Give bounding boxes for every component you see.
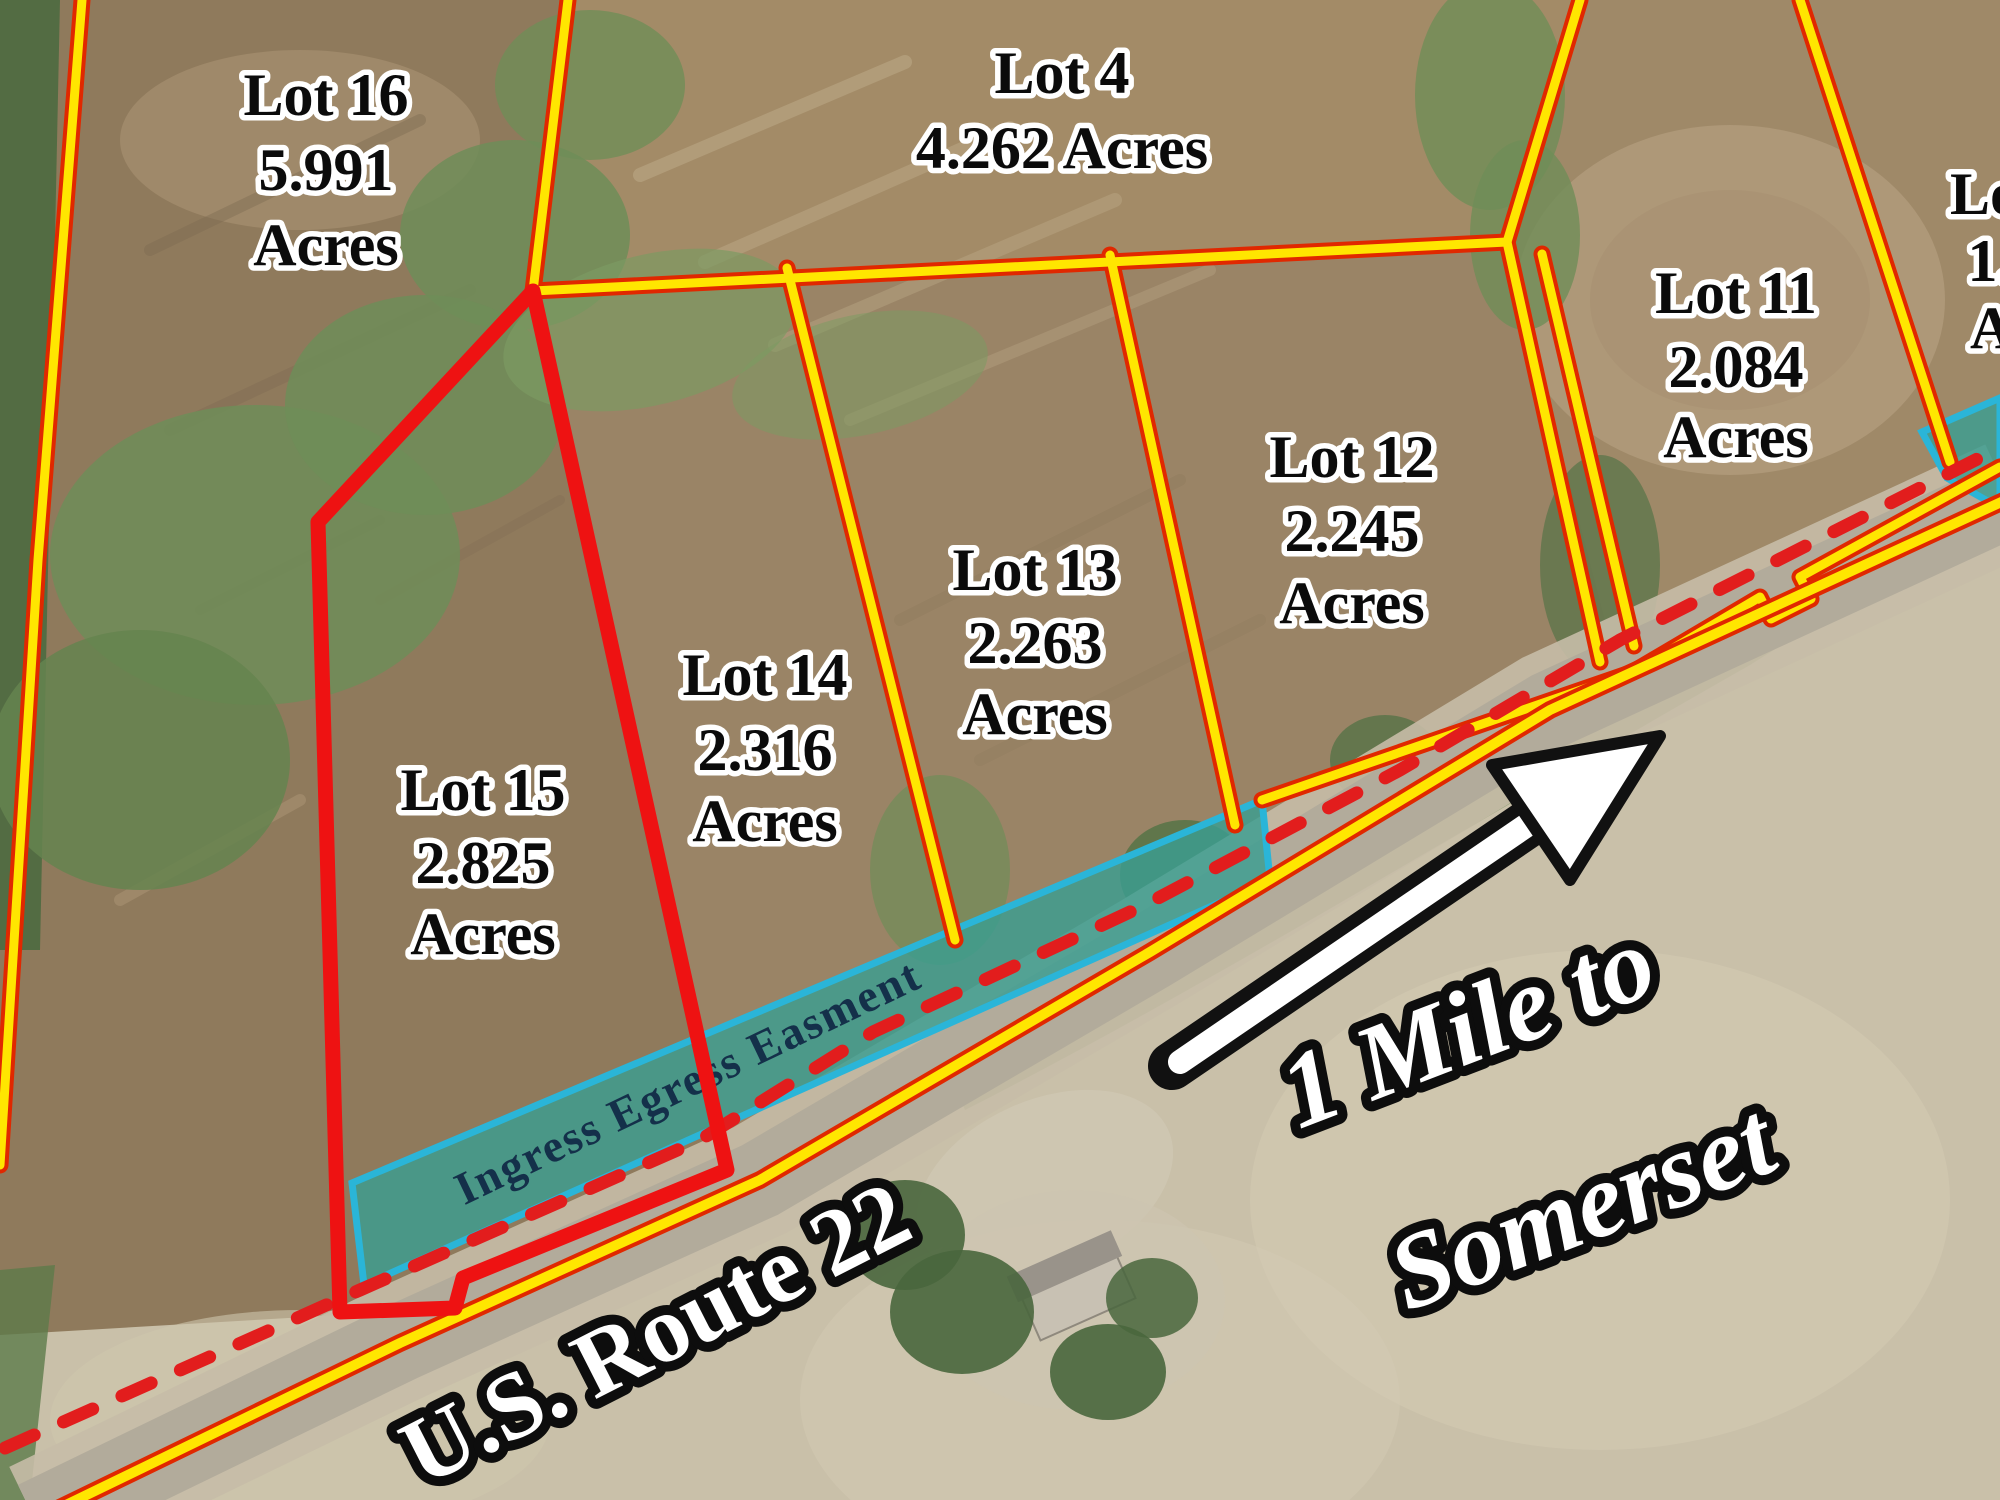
lot-11-name: Lot 11 (1655, 260, 1817, 326)
lot-16-name: Lot 16 (244, 62, 409, 128)
lot-east-partial-unit: Ac (1970, 295, 2000, 361)
lot-13-acres: 2.263 (968, 610, 1103, 676)
lot-14-acres: 2.316 (698, 717, 833, 783)
lot-4-acres: 4.262 Acres (916, 115, 1208, 181)
lot-14-unit: Acres (692, 788, 838, 854)
lot-east-partial-acres: 1.7 (1968, 228, 2000, 294)
lot-15-unit: Acres (410, 901, 556, 967)
lot-4-name: Lot 4 (995, 40, 1130, 106)
tree (1050, 1324, 1166, 1420)
lot-12-name: Lot 12 (1270, 424, 1435, 490)
tree (890, 1250, 1034, 1374)
lot-16-unit: Acres (253, 212, 399, 278)
aerial-parcel-map: Ingress Egress Easment (0, 0, 2000, 1500)
green-swath (0, 630, 290, 890)
lot-12-acres: 2.245 (1285, 498, 1420, 564)
tree (1106, 1258, 1198, 1338)
lot-12-unit: Acres (1279, 570, 1425, 636)
lot-13-unit: Acres (962, 681, 1108, 747)
lot-15-name: Lot 15 (401, 757, 566, 823)
lot-11-unit: Acres (1663, 404, 1809, 470)
lot-16-acres: 5.991 (259, 137, 394, 203)
lot-15-acres: 2.825 (416, 830, 551, 896)
lot-14-name: Lot 14 (683, 642, 848, 708)
lot-11-acres: 2.084 (1669, 334, 1804, 400)
lot-13-name: Lot 13 (953, 537, 1118, 603)
map-canvas: Ingress Egress Easment (0, 0, 2000, 1500)
lot-east-partial-name: Lot (1950, 161, 2000, 227)
green-swath (495, 10, 685, 160)
